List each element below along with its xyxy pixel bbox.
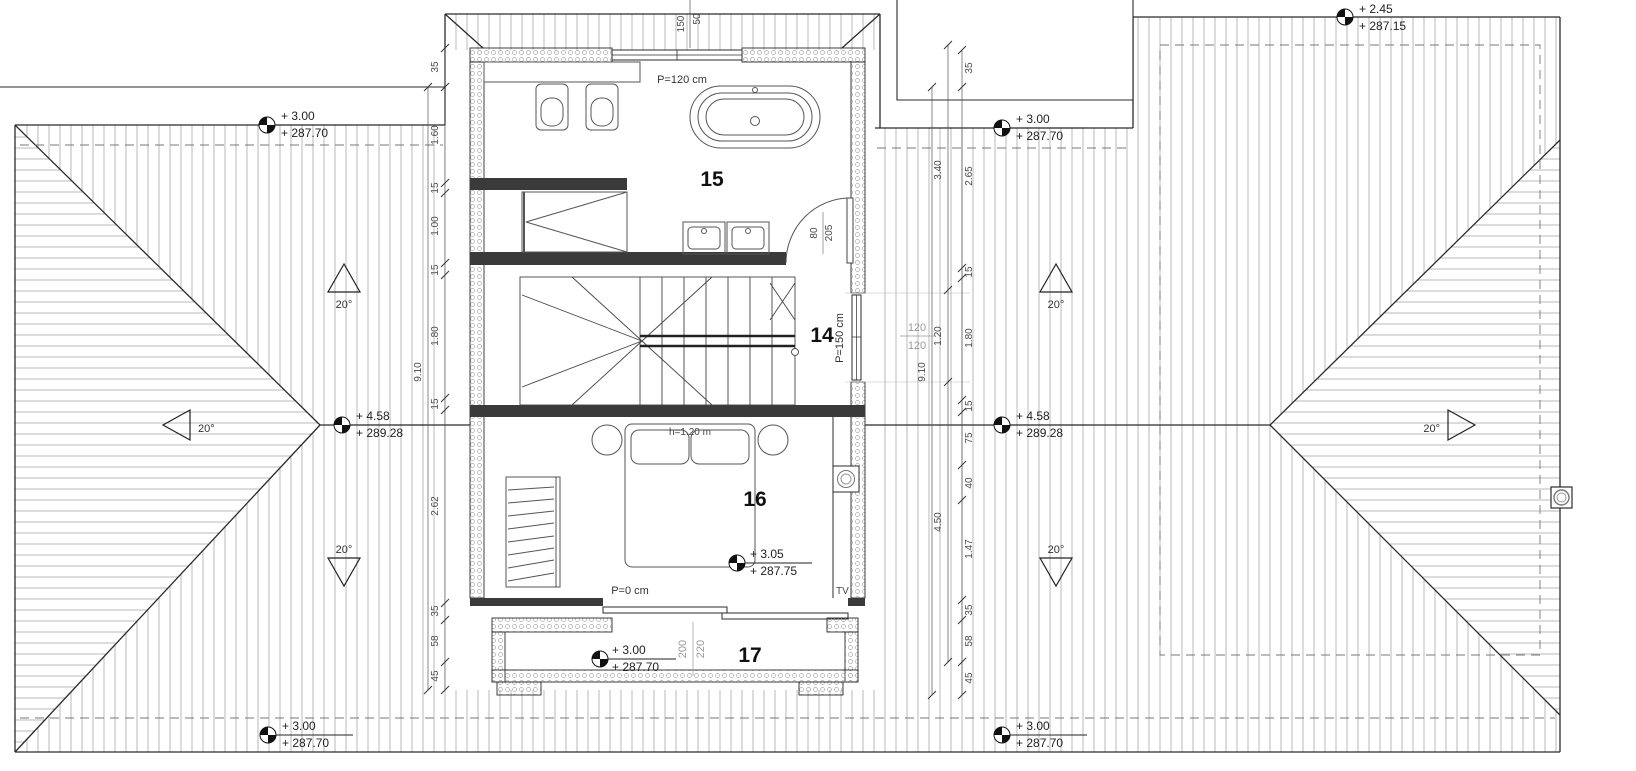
slope-angle: 20°	[336, 299, 353, 311]
terrace-opening-dims: 200 220	[677, 640, 707, 658]
dim-value: 1.80	[964, 328, 975, 348]
dim-value: 45	[964, 672, 975, 684]
slope-angle: 20°	[198, 423, 215, 435]
slope-angle: 20°	[1048, 299, 1065, 311]
wall-speaker	[833, 466, 859, 492]
dim-value: 50	[692, 13, 703, 25]
dim-value: 58	[964, 635, 975, 647]
level-abs: + 289.28	[1016, 426, 1063, 440]
nightstand-left	[592, 425, 622, 455]
double-bed	[625, 424, 755, 567]
wardrobe	[506, 477, 560, 587]
roof-band-under-terrace	[445, 690, 875, 752]
vanity-ledge	[484, 62, 640, 82]
adjacent-structure	[897, 0, 1133, 100]
dim-value: 15	[964, 266, 975, 278]
parapet-hall-label: P=150 cm	[834, 313, 846, 363]
room-label-14: 14	[810, 324, 834, 347]
bath-door-dims: 80 205	[809, 224, 835, 241]
bidet	[586, 84, 618, 130]
dim-value: 58	[430, 635, 441, 647]
level-rel: + 4.58	[1016, 409, 1050, 423]
slope-angle: 20°	[1423, 423, 1440, 435]
bathroom-fixtures	[484, 62, 853, 263]
dim-value: 150	[676, 15, 687, 32]
level-abs: + 287.70	[612, 660, 659, 674]
level-abs: + 287.70	[1016, 129, 1063, 143]
level-rel: + 4.58	[356, 409, 390, 423]
bed-height-label: h=1.20 m	[669, 427, 711, 438]
room-label-15: 15	[700, 168, 724, 191]
dim-value: 1.60	[430, 125, 441, 145]
parapet-bath-label: P=120 cm	[657, 74, 707, 86]
dim-value: 35	[964, 62, 975, 74]
dim-value: 2.62	[430, 496, 441, 516]
interior-walls	[470, 178, 865, 606]
sliding-door	[603, 607, 848, 619]
dim-value: 15	[964, 400, 975, 412]
window-top	[612, 50, 742, 60]
level-marker-terrace: + 3.00 + 287.70	[592, 643, 676, 674]
floor-plan-drawing: 35 1.60 15 1.00 15 1.80 15 2.62 35 58 45…	[0, 0, 1636, 771]
dim-value: 15	[430, 264, 441, 276]
dim-value: 2.65	[964, 166, 975, 186]
dim-value: 1.20	[933, 326, 944, 346]
dim-value: 220	[695, 640, 707, 658]
terrace-walls	[492, 618, 858, 695]
level-abs: + 287.15	[1359, 19, 1406, 33]
roof-strip-top-bay	[445, 14, 880, 50]
room-label-17: 17	[738, 644, 761, 667]
level-abs: + 287.70	[281, 126, 328, 140]
level-abs: + 287.70	[282, 736, 329, 750]
level-marker-bedroom: + 3.05 + 287.75	[729, 547, 812, 578]
level-rel: + 3.00	[1016, 112, 1050, 126]
tv-label: TV	[836, 586, 849, 597]
dim-value: 35	[430, 61, 441, 73]
staircase	[520, 277, 799, 405]
dim-value: 120	[908, 340, 926, 352]
dim-value: 1.47	[964, 539, 975, 559]
level-abs: + 289.28	[356, 426, 403, 440]
toilet	[536, 84, 568, 130]
parapet-terrace-label: P=0 cm	[611, 585, 649, 597]
dim-value: 80	[809, 227, 820, 239]
dim-value: 1.80	[430, 326, 441, 346]
level-abs: + 287.75	[750, 564, 797, 578]
double-sink	[683, 222, 769, 254]
nightstand-right	[758, 425, 788, 455]
level-rel: + 2.45	[1359, 2, 1393, 16]
shower	[522, 192, 627, 252]
bathtub	[690, 86, 820, 148]
dim-value: 120	[908, 322, 926, 334]
dim-value: 3.40	[933, 160, 944, 180]
dim-value: 35	[430, 605, 441, 617]
level-rel: + 3.00	[1016, 719, 1050, 733]
dim-value: 45	[430, 670, 441, 682]
level-rel: + 3.00	[612, 643, 646, 657]
dim-value: 40	[964, 477, 975, 489]
dim-value: 200	[677, 640, 689, 658]
roof-chimney	[1551, 487, 1572, 508]
slope-angle: 20°	[336, 544, 353, 556]
level-rel: + 3.00	[281, 109, 315, 123]
plan-canvas: 35 1.60 15 1.00 15 1.80 15 2.62 35 58 45…	[0, 0, 1636, 771]
dim-value: 4.50	[933, 512, 944, 532]
exterior-walls	[470, 48, 865, 598]
dim-value: 15	[430, 398, 441, 410]
room-label-16: 16	[743, 488, 766, 511]
level-rel: + 3.05	[750, 547, 784, 561]
dim-value: 15	[430, 182, 441, 194]
dim-total-left: 9.10	[413, 362, 424, 382]
slope-angle: 20°	[1048, 544, 1065, 556]
dim-value: 205	[824, 224, 835, 241]
level-rel: + 3.00	[282, 719, 316, 733]
dim-total-right: 9.10	[917, 362, 928, 382]
dim-value: 75	[964, 432, 975, 444]
dim-value: 35	[964, 604, 975, 616]
level-abs: + 287.70	[1016, 736, 1063, 750]
dim-value: 1.00	[430, 216, 441, 236]
